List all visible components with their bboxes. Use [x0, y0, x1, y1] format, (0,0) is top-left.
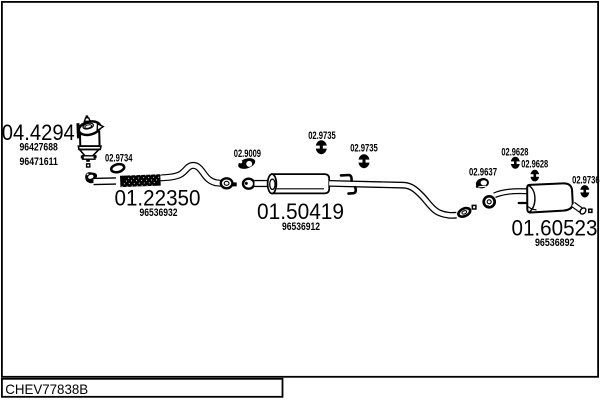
svg-text:96471611: 96471611 — [20, 156, 58, 168]
svg-text:96536932: 96536932 — [140, 207, 178, 219]
svg-text:02.9009: 02.9009 — [234, 148, 261, 160]
svg-text:02.9628: 02.9628 — [521, 159, 548, 171]
svg-text:96427688: 96427688 — [20, 142, 58, 154]
svg-text:02.9637: 02.9637 — [469, 166, 497, 178]
svg-text:02.9628: 02.9628 — [501, 147, 528, 159]
svg-text:96536892: 96536892 — [535, 237, 575, 249]
svg-text:02.9735: 02.9735 — [308, 130, 336, 142]
svg-text:02.9736: 02.9736 — [572, 175, 600, 187]
svg-text:CHEV77838B: CHEV77838B — [5, 381, 88, 397]
svg-text:02.9734: 02.9734 — [105, 153, 133, 165]
svg-text:02.9735: 02.9735 — [350, 142, 378, 154]
svg-text:96536912: 96536912 — [282, 221, 320, 233]
